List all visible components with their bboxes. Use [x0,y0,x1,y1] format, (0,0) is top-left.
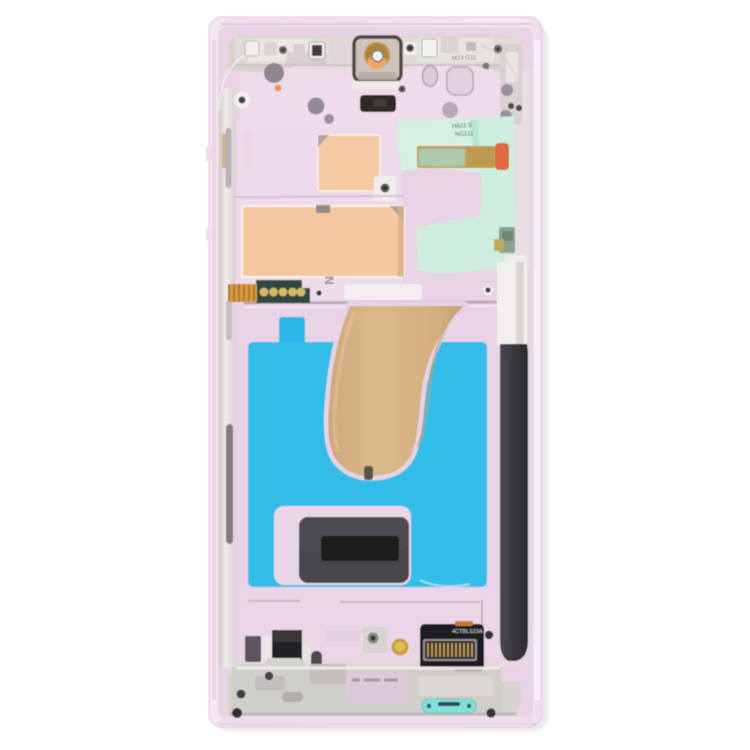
svg-text:H623 S: H623 S [452,123,472,130]
svg-text:NG211: NG211 [455,131,475,138]
svg-text:M23 G11: M23 G11 [452,55,477,62]
svg-text:N: N [322,276,336,285]
svg-text:SAMSUNG: SAMSUNG [245,133,252,168]
svg-text:4CTBLS23A: 4CTBLS23A [452,629,483,635]
